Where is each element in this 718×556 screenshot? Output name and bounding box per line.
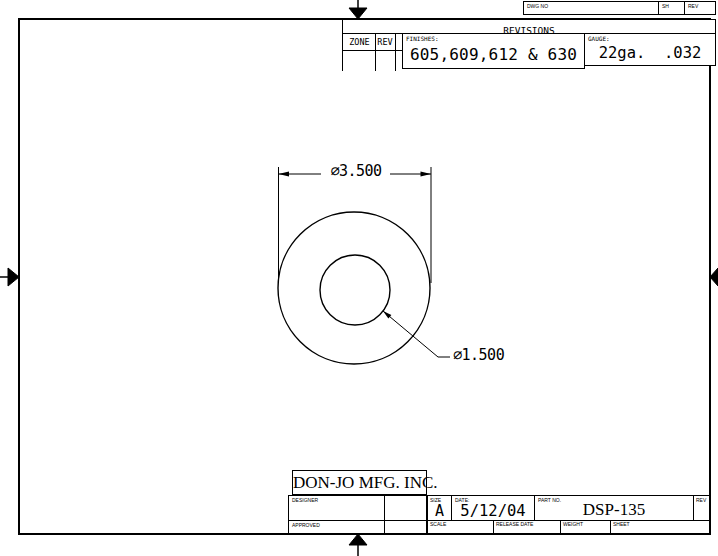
release-date-label: RELEASE DATE: [496, 522, 533, 527]
drawing-sheet: ∅3.500 ∅1.500 DWG NO SH REV REVISIONS ZO…: [0, 0, 718, 556]
strip-divider-1: [658, 2, 659, 14]
designer-label: DESIGNER: [292, 498, 318, 503]
outer-diameter-dimension: [279, 167, 432, 283]
dwg-no-strip: DWG NO SH REV: [523, 1, 716, 15]
leader-line: [383, 311, 450, 357]
gauge-value: 22ga. .032: [585, 46, 715, 62]
zone-col-left-line: [342, 33, 343, 71]
centering-mark-bottom: [349, 534, 367, 556]
strip-divider-2: [684, 2, 685, 14]
rev-label: REV: [696, 498, 706, 503]
sheet-cell: SHEET: [610, 520, 710, 534]
company-box: DON-JO MFG. INC.: [292, 470, 427, 495]
approved-label: APPROVED: [292, 523, 320, 528]
finishes-label: FINISHES:: [406, 36, 439, 42]
sheet-border: [19, 19, 710, 534]
signoff-row-line: [289, 520, 426, 521]
outer-diameter-label: ∅3.500: [320, 164, 392, 179]
inner-circle: [320, 255, 390, 325]
zone-label: ZONE: [344, 38, 375, 47]
part-no-value: DSP-135: [535, 501, 693, 518]
gauge-label: GAUGE:: [588, 36, 610, 42]
part-no-cell: PART NO. DSP-135: [534, 495, 694, 521]
outer-circle: [278, 212, 430, 364]
dimension-arrow-right: [421, 172, 432, 177]
weight-cell: WEIGHT: [560, 520, 611, 534]
inner-diameter-label: ∅1.500: [453, 348, 504, 363]
finishes-box: FINISHES: 605,609,612 & 630: [402, 33, 585, 69]
zone-col-right-line: [395, 33, 396, 71]
weight-label: WEIGHT: [563, 522, 583, 527]
rev-cell: REV: [693, 495, 710, 521]
scale-label: SCALE: [430, 522, 446, 527]
dimension-arrow-left: [279, 172, 290, 177]
signoff-col-line: [384, 496, 385, 533]
dwg-no-label: DWG NO: [527, 4, 548, 9]
rev-col-label: REV: [375, 38, 395, 47]
signoff-grid: DESIGNER APPROVED: [288, 495, 427, 534]
date-value: 5/12/04: [452, 504, 534, 520]
sheet-label: SHEET: [613, 522, 630, 527]
release-date-cell: RELEASE DATE: [493, 520, 561, 534]
sh-label: SH: [662, 4, 669, 9]
date-cell: DATE: 5/12/04: [451, 495, 535, 521]
centering-mark-right: [710, 268, 718, 286]
gauge-box: GAUGE: 22ga. .032: [584, 33, 716, 66]
company-name: DON-JO MFG. INC.: [293, 473, 438, 492]
inner-diameter-leader: [383, 311, 450, 357]
size-cell: SIZE A: [427, 495, 452, 521]
zone-row-line: [342, 50, 402, 51]
revisions-header: REVISIONS: [342, 19, 716, 34]
centering-mark-left: [0, 268, 19, 286]
centering-mark-top: [349, 0, 367, 19]
scale-cell: SCALE: [427, 520, 494, 534]
strip-rev-label: REV: [688, 4, 698, 9]
size-value: A: [428, 504, 451, 519]
finishes-value: 605,609,612 & 630: [403, 47, 584, 63]
